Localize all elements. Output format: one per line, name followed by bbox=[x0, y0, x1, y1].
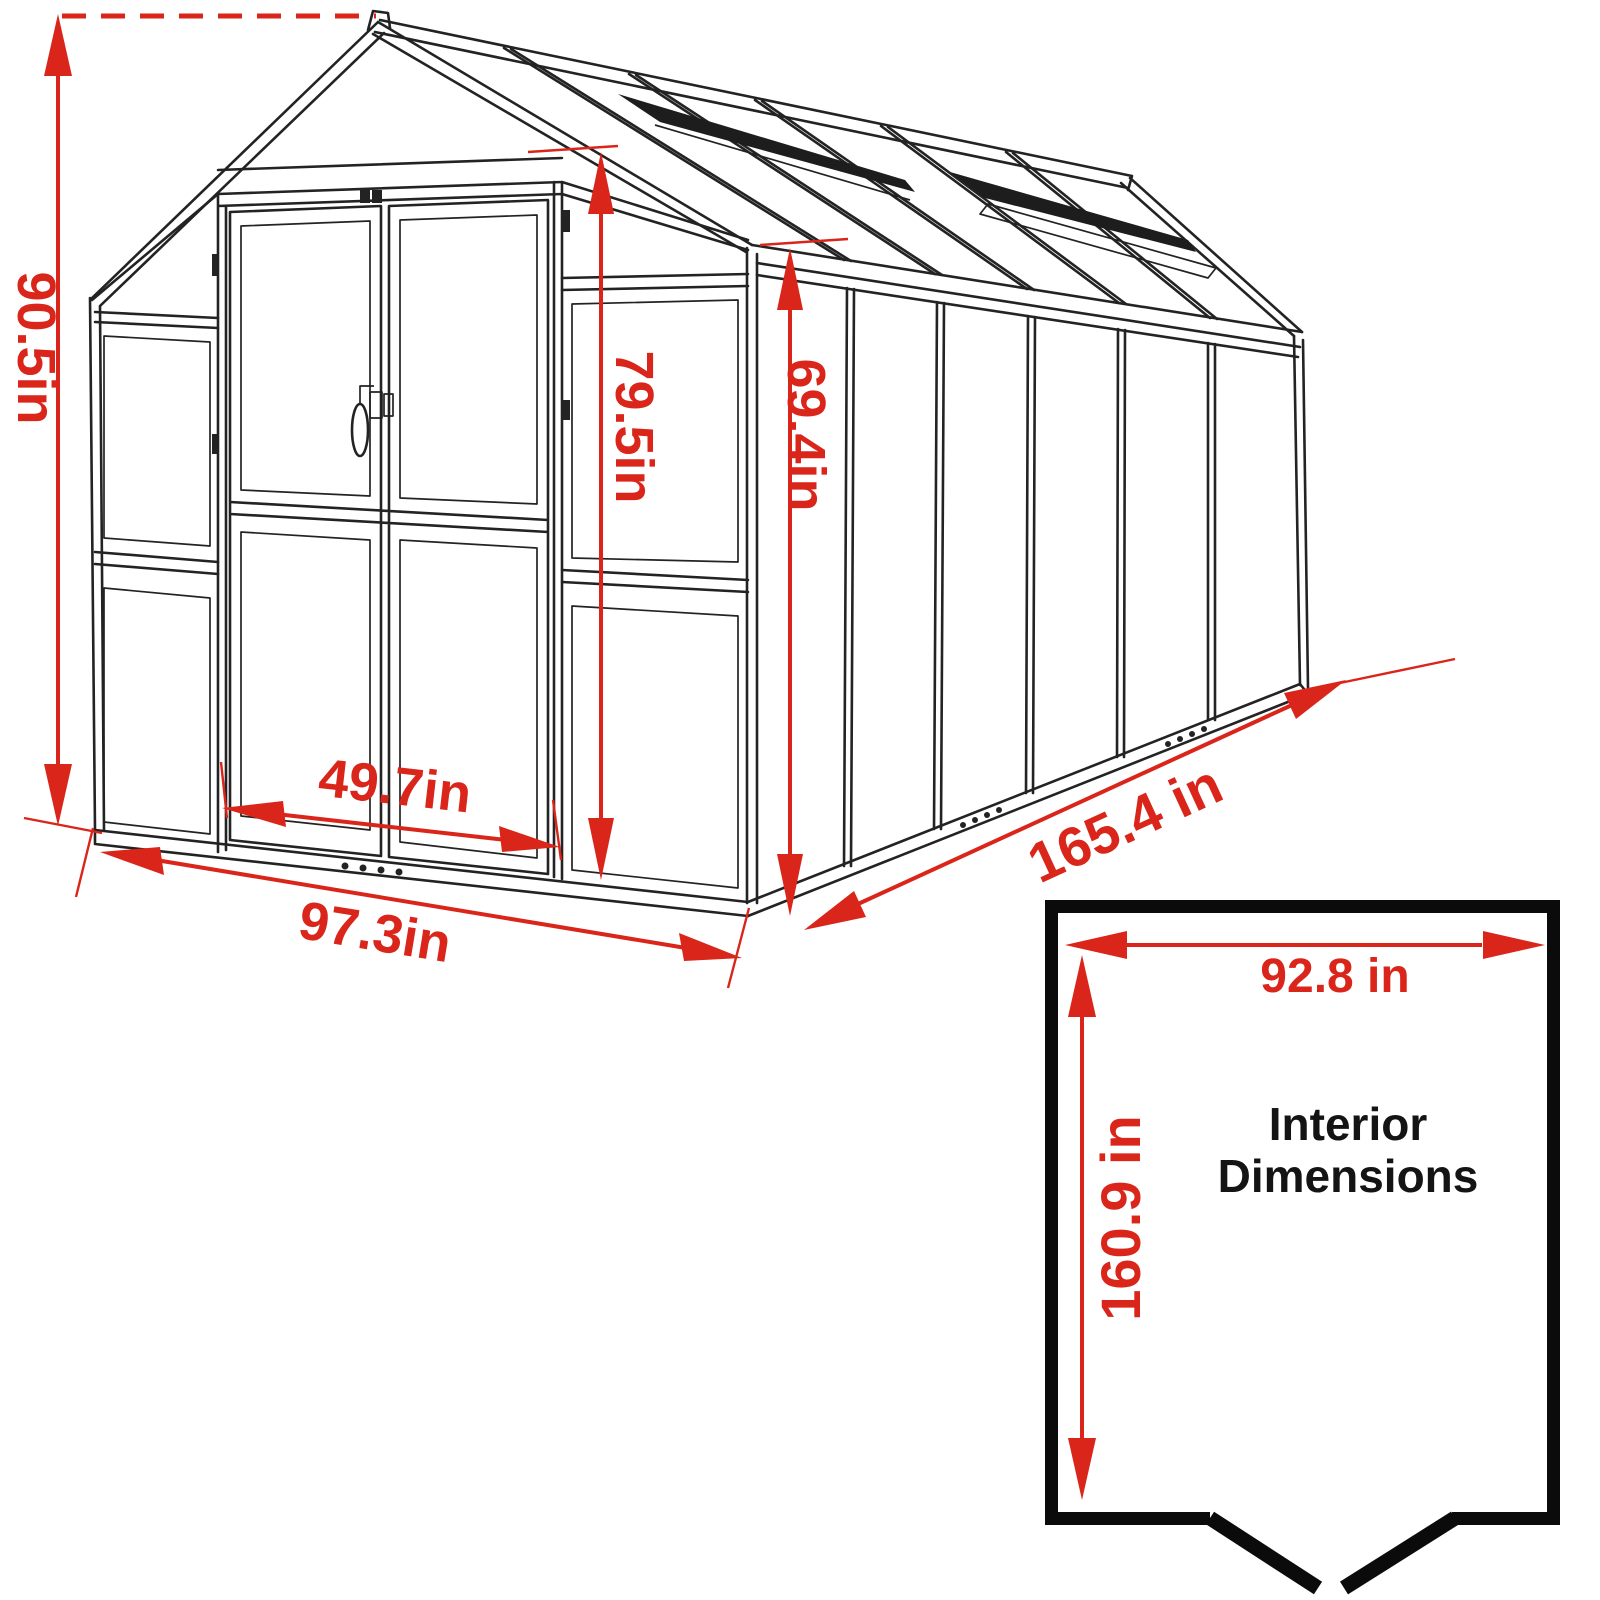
interior-dimensions-box: 92.8 in 160.9 in Interior Dimensions bbox=[1045, 900, 1560, 1588]
interior-box-border-bottom-left bbox=[1045, 1512, 1210, 1525]
arrowhead-right bbox=[1483, 931, 1545, 959]
arrowhead-left bbox=[100, 847, 164, 875]
dimension-side-wall-height: 69.4in bbox=[760, 239, 848, 916]
dimension-line bbox=[276, 814, 506, 840]
dimension-interior-length: 160.9 in bbox=[1068, 955, 1152, 1500]
dimension-label-side-wall-height: 69.4in bbox=[776, 358, 836, 511]
arrowhead-down bbox=[588, 818, 614, 880]
dimension-interior-width: 92.8 in bbox=[1065, 931, 1545, 1003]
dimension-label-side-length: 165.4 in bbox=[1018, 752, 1231, 895]
witness-line bbox=[728, 908, 749, 988]
back-corner-post bbox=[1294, 336, 1308, 688]
dimension-label-interior-length: 160.9 in bbox=[1089, 1115, 1152, 1320]
dimension-label-front-width: 97.3in bbox=[295, 890, 456, 974]
arrowhead-left bbox=[804, 891, 866, 930]
arrowhead-left bbox=[1065, 931, 1127, 959]
door-hinges bbox=[212, 190, 570, 454]
witness-line bbox=[760, 239, 848, 245]
front-left-panels bbox=[95, 312, 218, 574]
arrowhead-right bbox=[499, 826, 560, 852]
interior-caption-line2: Dimensions bbox=[1218, 1150, 1479, 1202]
interior-box-border-top bbox=[1045, 900, 1560, 913]
greenhouse-dimensions-diagram: 90.5in 79.5in 69.4in 49.7in 97.3in bbox=[0, 0, 1600, 1600]
interior-caption-line1: Interior bbox=[1269, 1098, 1428, 1150]
ridge-beam bbox=[375, 20, 1132, 190]
front-left-glazing-outlines bbox=[104, 336, 210, 834]
interior-door-leaf-left bbox=[1210, 1518, 1318, 1588]
arrowhead-down bbox=[44, 764, 72, 826]
dimension-label-overall-height: 90.5in bbox=[6, 271, 66, 424]
dimension-label-front-wall-height: 79.5in bbox=[604, 350, 664, 503]
dimension-label-door-width: 49.7in bbox=[316, 748, 475, 825]
dimension-front-width: 97.3in bbox=[100, 847, 749, 988]
arrowhead-down bbox=[1068, 1438, 1096, 1500]
back-roof-edge bbox=[1121, 178, 1302, 336]
arrowhead-left bbox=[222, 801, 286, 827]
arrowhead-up bbox=[1068, 955, 1096, 1017]
dimension-label-interior-width: 92.8 in bbox=[1260, 950, 1409, 1003]
witness-line bbox=[1340, 659, 1455, 683]
front-right-corner-post bbox=[747, 248, 757, 903]
page: 90.5in 79.5in 69.4in 49.7in 97.3in bbox=[0, 0, 1600, 1600]
arrowhead-down bbox=[777, 854, 803, 916]
dimension-side-length: 165.4 in bbox=[804, 659, 1455, 930]
arrowhead-right bbox=[679, 933, 742, 961]
witness-line bbox=[24, 818, 102, 897]
interior-box-border-right bbox=[1547, 900, 1560, 1525]
door-handle bbox=[352, 404, 368, 456]
interior-box-border-left bbox=[1045, 900, 1058, 1525]
front-roof-edges bbox=[92, 11, 752, 306]
arrowhead-up bbox=[44, 14, 72, 76]
interior-door-leaf-right bbox=[1344, 1518, 1455, 1588]
interior-box-border-bottom-right bbox=[1452, 1512, 1560, 1525]
